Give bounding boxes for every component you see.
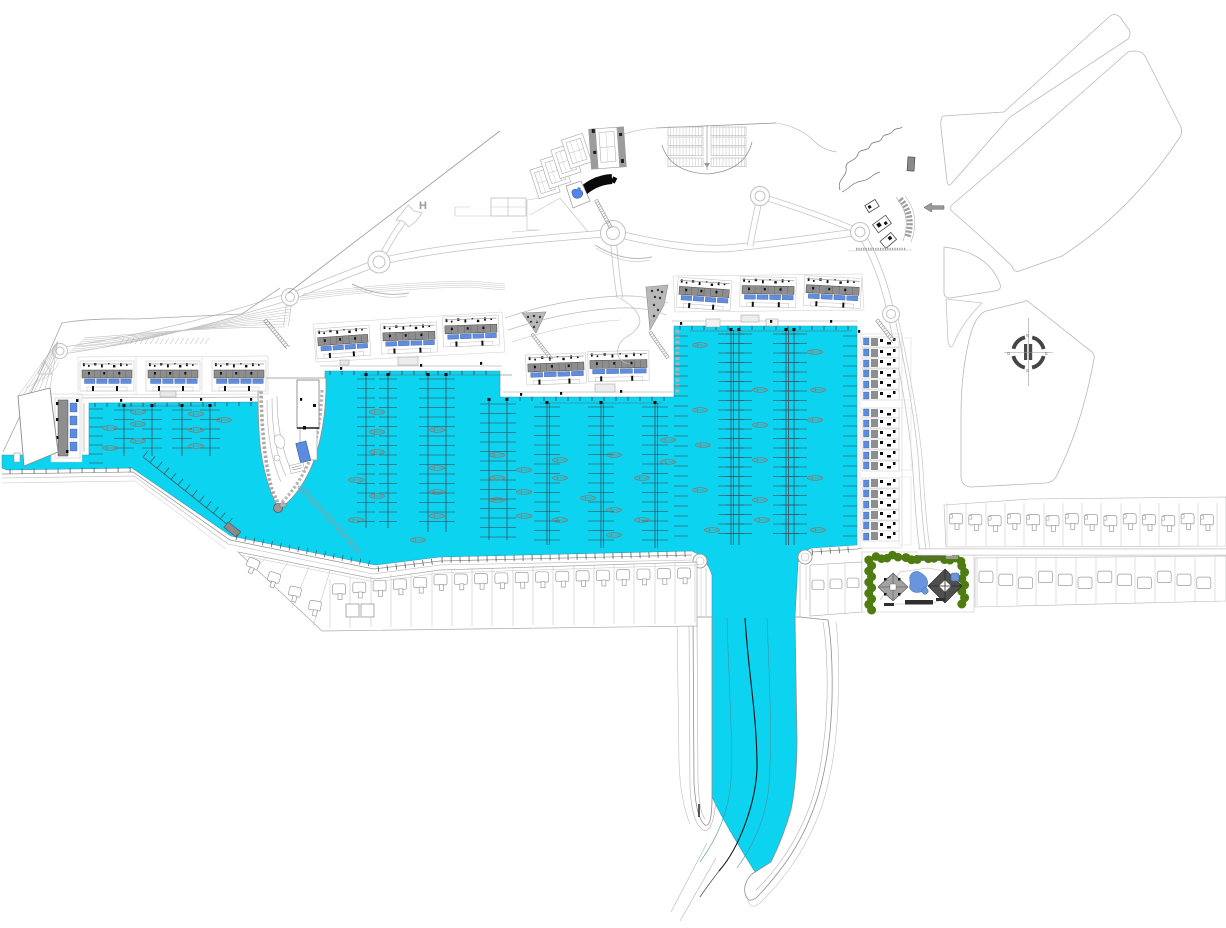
svg-text:N: N [1026,333,1029,338]
svg-text:S: S [1026,368,1029,373]
svg-text:E: E [1045,351,1048,356]
svg-text:H: H [419,200,427,212]
